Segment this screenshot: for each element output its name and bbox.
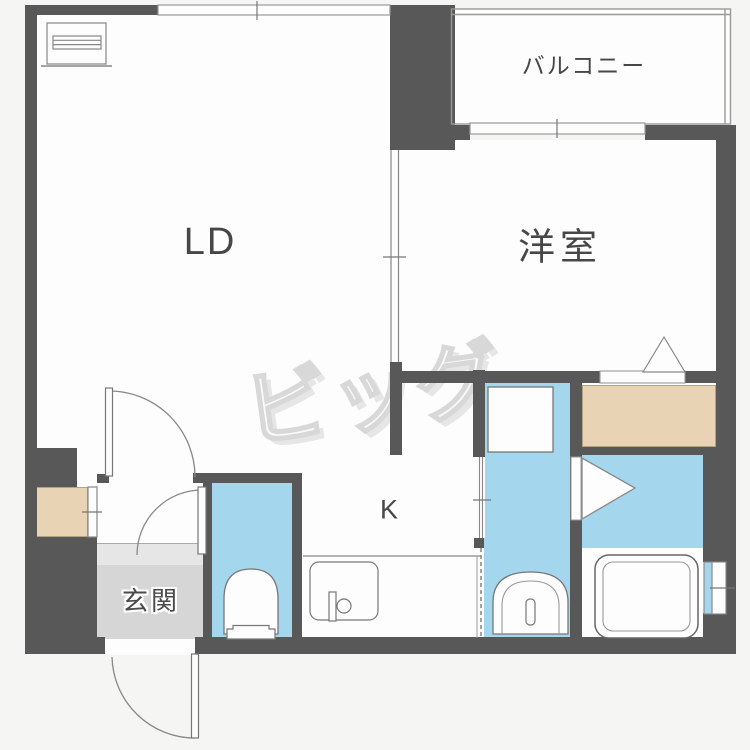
kitchen-sink-icon <box>303 556 481 638</box>
door-triangle-icon <box>571 457 635 520</box>
washbasin-icon <box>493 572 568 634</box>
room-label-kitchen: K <box>380 497 398 524</box>
door-swing-icon <box>137 487 206 555</box>
room-label-entrance: 玄関 <box>122 588 180 614</box>
window-icon <box>470 119 645 138</box>
room-label-western: 洋室 <box>518 229 602 266</box>
washroom-door <box>473 457 491 639</box>
door-triangle-icon <box>600 337 685 383</box>
washing-machine-pan-icon <box>488 387 553 452</box>
sliding-partition-icon <box>383 150 406 362</box>
window-icon <box>158 1 390 20</box>
door-swing-icon <box>106 388 196 484</box>
closet-door <box>82 487 102 537</box>
faucet-icon <box>329 592 336 621</box>
door-swing-icon <box>105 639 199 738</box>
window-icon <box>704 562 735 614</box>
bathtub-icon <box>595 555 698 638</box>
heater-icon <box>41 23 112 66</box>
toilet-icon <box>224 569 278 639</box>
room-label-ld: LD <box>184 223 237 261</box>
floor-plan: ビッグ <box>0 0 750 750</box>
room-label-balcony: バルコニー <box>522 55 647 78</box>
fixtures-overlay <box>0 0 750 750</box>
